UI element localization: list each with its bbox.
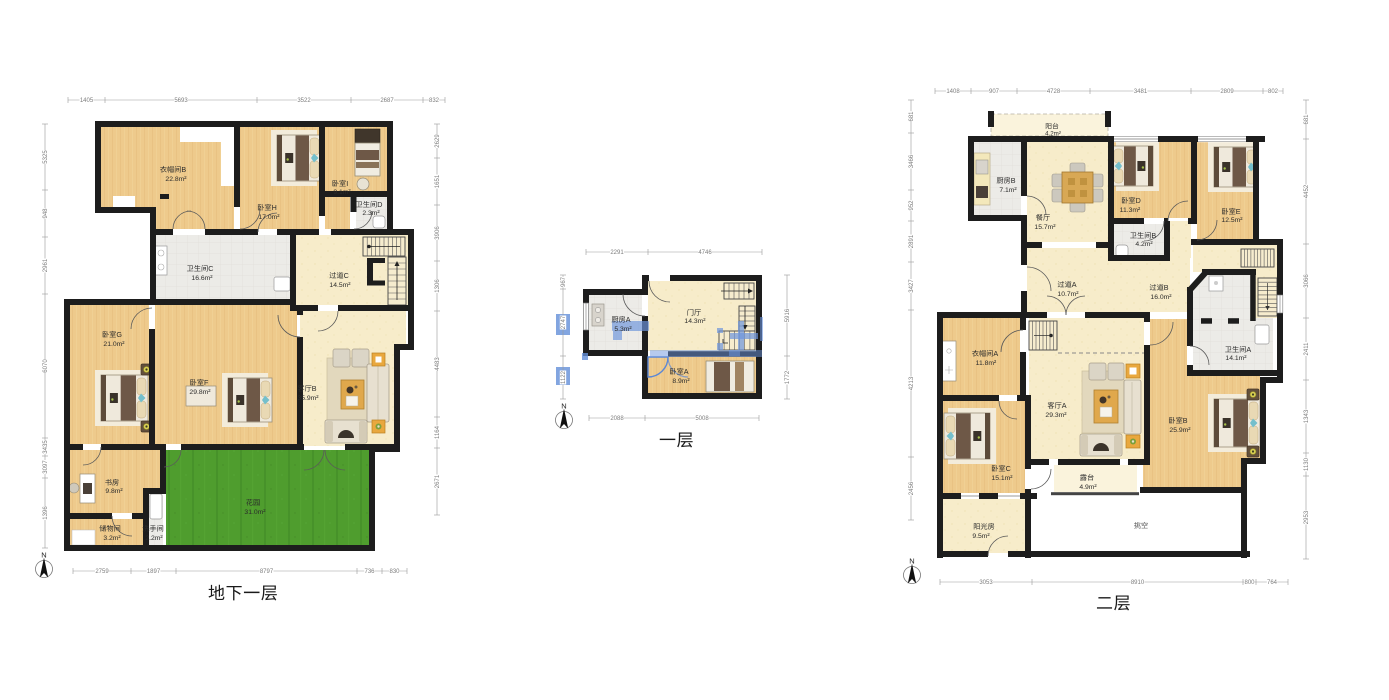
svg-text:G: G: [116, 330, 122, 339]
svg-text:14.1m²: 14.1m²: [1225, 355, 1247, 362]
svg-text:2891: 2891: [909, 234, 915, 248]
svg-text:2088: 2088: [610, 416, 624, 422]
svg-text:A: A: [1246, 345, 1251, 354]
svg-text:2.2m²: 2.2m²: [145, 535, 163, 542]
svg-text:3481: 3481: [1134, 89, 1148, 95]
svg-text:5693: 5693: [174, 98, 188, 104]
svg-text:D: D: [377, 200, 382, 209]
svg-text:802: 802: [1268, 89, 1279, 95]
svg-text:B: B: [1151, 231, 1156, 240]
svg-text:948: 948: [43, 208, 49, 219]
svg-text:5325: 5325: [43, 150, 49, 164]
svg-text:A: A: [626, 315, 631, 324]
svg-text:4452: 4452: [1304, 184, 1310, 198]
svg-text:800: 800: [1244, 580, 1255, 586]
svg-text:14.5m²: 14.5m²: [329, 282, 351, 289]
svg-text:1122: 1122: [561, 370, 567, 384]
svg-text:F: F: [204, 378, 209, 387]
svg-text:29.3m²: 29.3m²: [1045, 412, 1067, 419]
svg-text:3435: 3435: [43, 440, 49, 454]
svg-text:952: 952: [909, 200, 915, 211]
svg-text:4.9m²: 4.9m²: [1079, 484, 1097, 491]
svg-text:B: B: [1183, 416, 1188, 425]
svg-text:7.1m²: 7.1m²: [999, 187, 1017, 194]
svg-text:A: A: [993, 349, 998, 358]
svg-text:31.0m²: 31.0m²: [244, 509, 266, 516]
svg-text:17.0m²: 17.0m²: [258, 214, 280, 221]
svg-text:15.7m²: 15.7m²: [1034, 224, 1056, 231]
svg-text:H: H: [272, 203, 277, 212]
svg-text:4746: 4746: [698, 250, 712, 256]
svg-text:5916: 5916: [785, 308, 791, 322]
svg-text:11.3m²: 11.3m²: [1120, 207, 1141, 214]
svg-text:B: B: [1011, 176, 1016, 185]
svg-text:16.6m²: 16.6m²: [191, 275, 213, 282]
svg-text:21.0m²: 21.0m²: [103, 341, 125, 348]
svg-text:B: B: [181, 165, 186, 174]
svg-text:2953: 2953: [1304, 510, 1310, 524]
svg-text:22.8m²: 22.8m²: [165, 176, 187, 183]
svg-text:2411: 2411: [1304, 342, 1310, 356]
svg-text:1343: 1343: [1304, 409, 1310, 423]
svg-text:2961: 2961: [43, 258, 49, 272]
svg-text:9.8m²: 9.8m²: [105, 488, 123, 495]
svg-text:D: D: [1136, 196, 1141, 205]
svg-text:1772: 1772: [785, 370, 791, 384]
svg-text:6070: 6070: [43, 359, 49, 373]
svg-text:25.9m²: 25.9m²: [1169, 427, 1191, 434]
svg-text:3427: 3427: [909, 279, 915, 293]
svg-text:16.0m²: 16.0m²: [1150, 294, 1172, 301]
svg-text:4.2m²: 4.2m²: [1135, 241, 1153, 248]
svg-text:1897: 1897: [147, 569, 161, 575]
svg-text:4728: 4728: [1047, 89, 1061, 95]
svg-text:A: A: [684, 367, 689, 376]
svg-text:B: B: [1164, 283, 1169, 292]
svg-text:2629: 2629: [435, 134, 441, 148]
svg-text:1164: 1164: [435, 425, 441, 439]
svg-text:2809: 2809: [1220, 89, 1234, 95]
svg-text:736: 736: [364, 569, 375, 575]
svg-text:3097: 3097: [43, 460, 49, 474]
svg-text:E: E: [1236, 207, 1241, 216]
svg-text:967: 967: [561, 276, 567, 287]
svg-text:3522: 3522: [297, 98, 311, 104]
svg-text:B: B: [312, 384, 317, 393]
svg-text:2687: 2687: [380, 98, 394, 104]
svg-text:10.7m²: 10.7m²: [1057, 291, 1079, 298]
svg-text:2.3m²: 2.3m²: [362, 210, 380, 217]
svg-text:4.2m²: 4.2m²: [1045, 130, 1061, 137]
svg-text:14.3m²: 14.3m²: [684, 318, 706, 325]
svg-text:3.2m²: 3.2m²: [103, 535, 121, 542]
svg-text:3053: 3053: [979, 580, 993, 586]
svg-text:1405: 1405: [80, 98, 94, 104]
svg-text:764: 764: [1267, 580, 1278, 586]
svg-text:35.9m²: 35.9m²: [297, 395, 319, 402]
svg-text:29.8m²: 29.8m²: [189, 389, 211, 396]
svg-text:C: C: [344, 271, 349, 280]
svg-text:907: 907: [989, 89, 1000, 95]
svg-text:5.3m²: 5.3m²: [614, 326, 632, 333]
svg-text:832: 832: [429, 98, 440, 104]
svg-text:C: C: [208, 264, 213, 273]
svg-text:5008: 5008: [695, 416, 709, 422]
svg-text:4213: 4213: [909, 376, 915, 390]
svg-text:9.1m²: 9.1m²: [333, 189, 351, 196]
svg-text:C: C: [1006, 464, 1011, 473]
svg-text:A: A: [1062, 401, 1067, 410]
svg-text:681: 681: [1304, 114, 1310, 125]
svg-text:3066: 3066: [1304, 274, 1310, 288]
svg-text:1396: 1396: [43, 506, 49, 520]
svg-text:A: A: [1072, 280, 1077, 289]
svg-text:2671: 2671: [435, 474, 441, 488]
svg-text:1306: 1306: [435, 279, 441, 293]
svg-text:2456: 2456: [909, 481, 915, 495]
svg-text:8797: 8797: [260, 569, 274, 575]
svg-text:681: 681: [909, 111, 915, 122]
svg-text:8.9m²: 8.9m²: [672, 378, 690, 385]
svg-text:4483: 4483: [435, 357, 441, 371]
svg-text:830: 830: [389, 569, 400, 575]
svg-text:3906: 3906: [435, 226, 441, 240]
svg-text:12.5m²: 12.5m²: [1221, 217, 1243, 224]
svg-text:3466: 3466: [909, 154, 915, 168]
svg-text:2759: 2759: [95, 569, 109, 575]
svg-text:1130: 1130: [1304, 457, 1310, 471]
svg-text:2747: 2747: [561, 315, 567, 329]
svg-text:I: I: [346, 179, 348, 188]
svg-text:11.8m²: 11.8m²: [976, 360, 997, 367]
svg-text:2291: 2291: [610, 250, 624, 256]
svg-text:1651: 1651: [435, 174, 441, 188]
svg-text:9.5m²: 9.5m²: [972, 533, 990, 540]
svg-text:8910: 8910: [1131, 580, 1145, 586]
svg-text:15.1m²: 15.1m²: [991, 475, 1013, 482]
svg-text:1408: 1408: [946, 89, 960, 95]
